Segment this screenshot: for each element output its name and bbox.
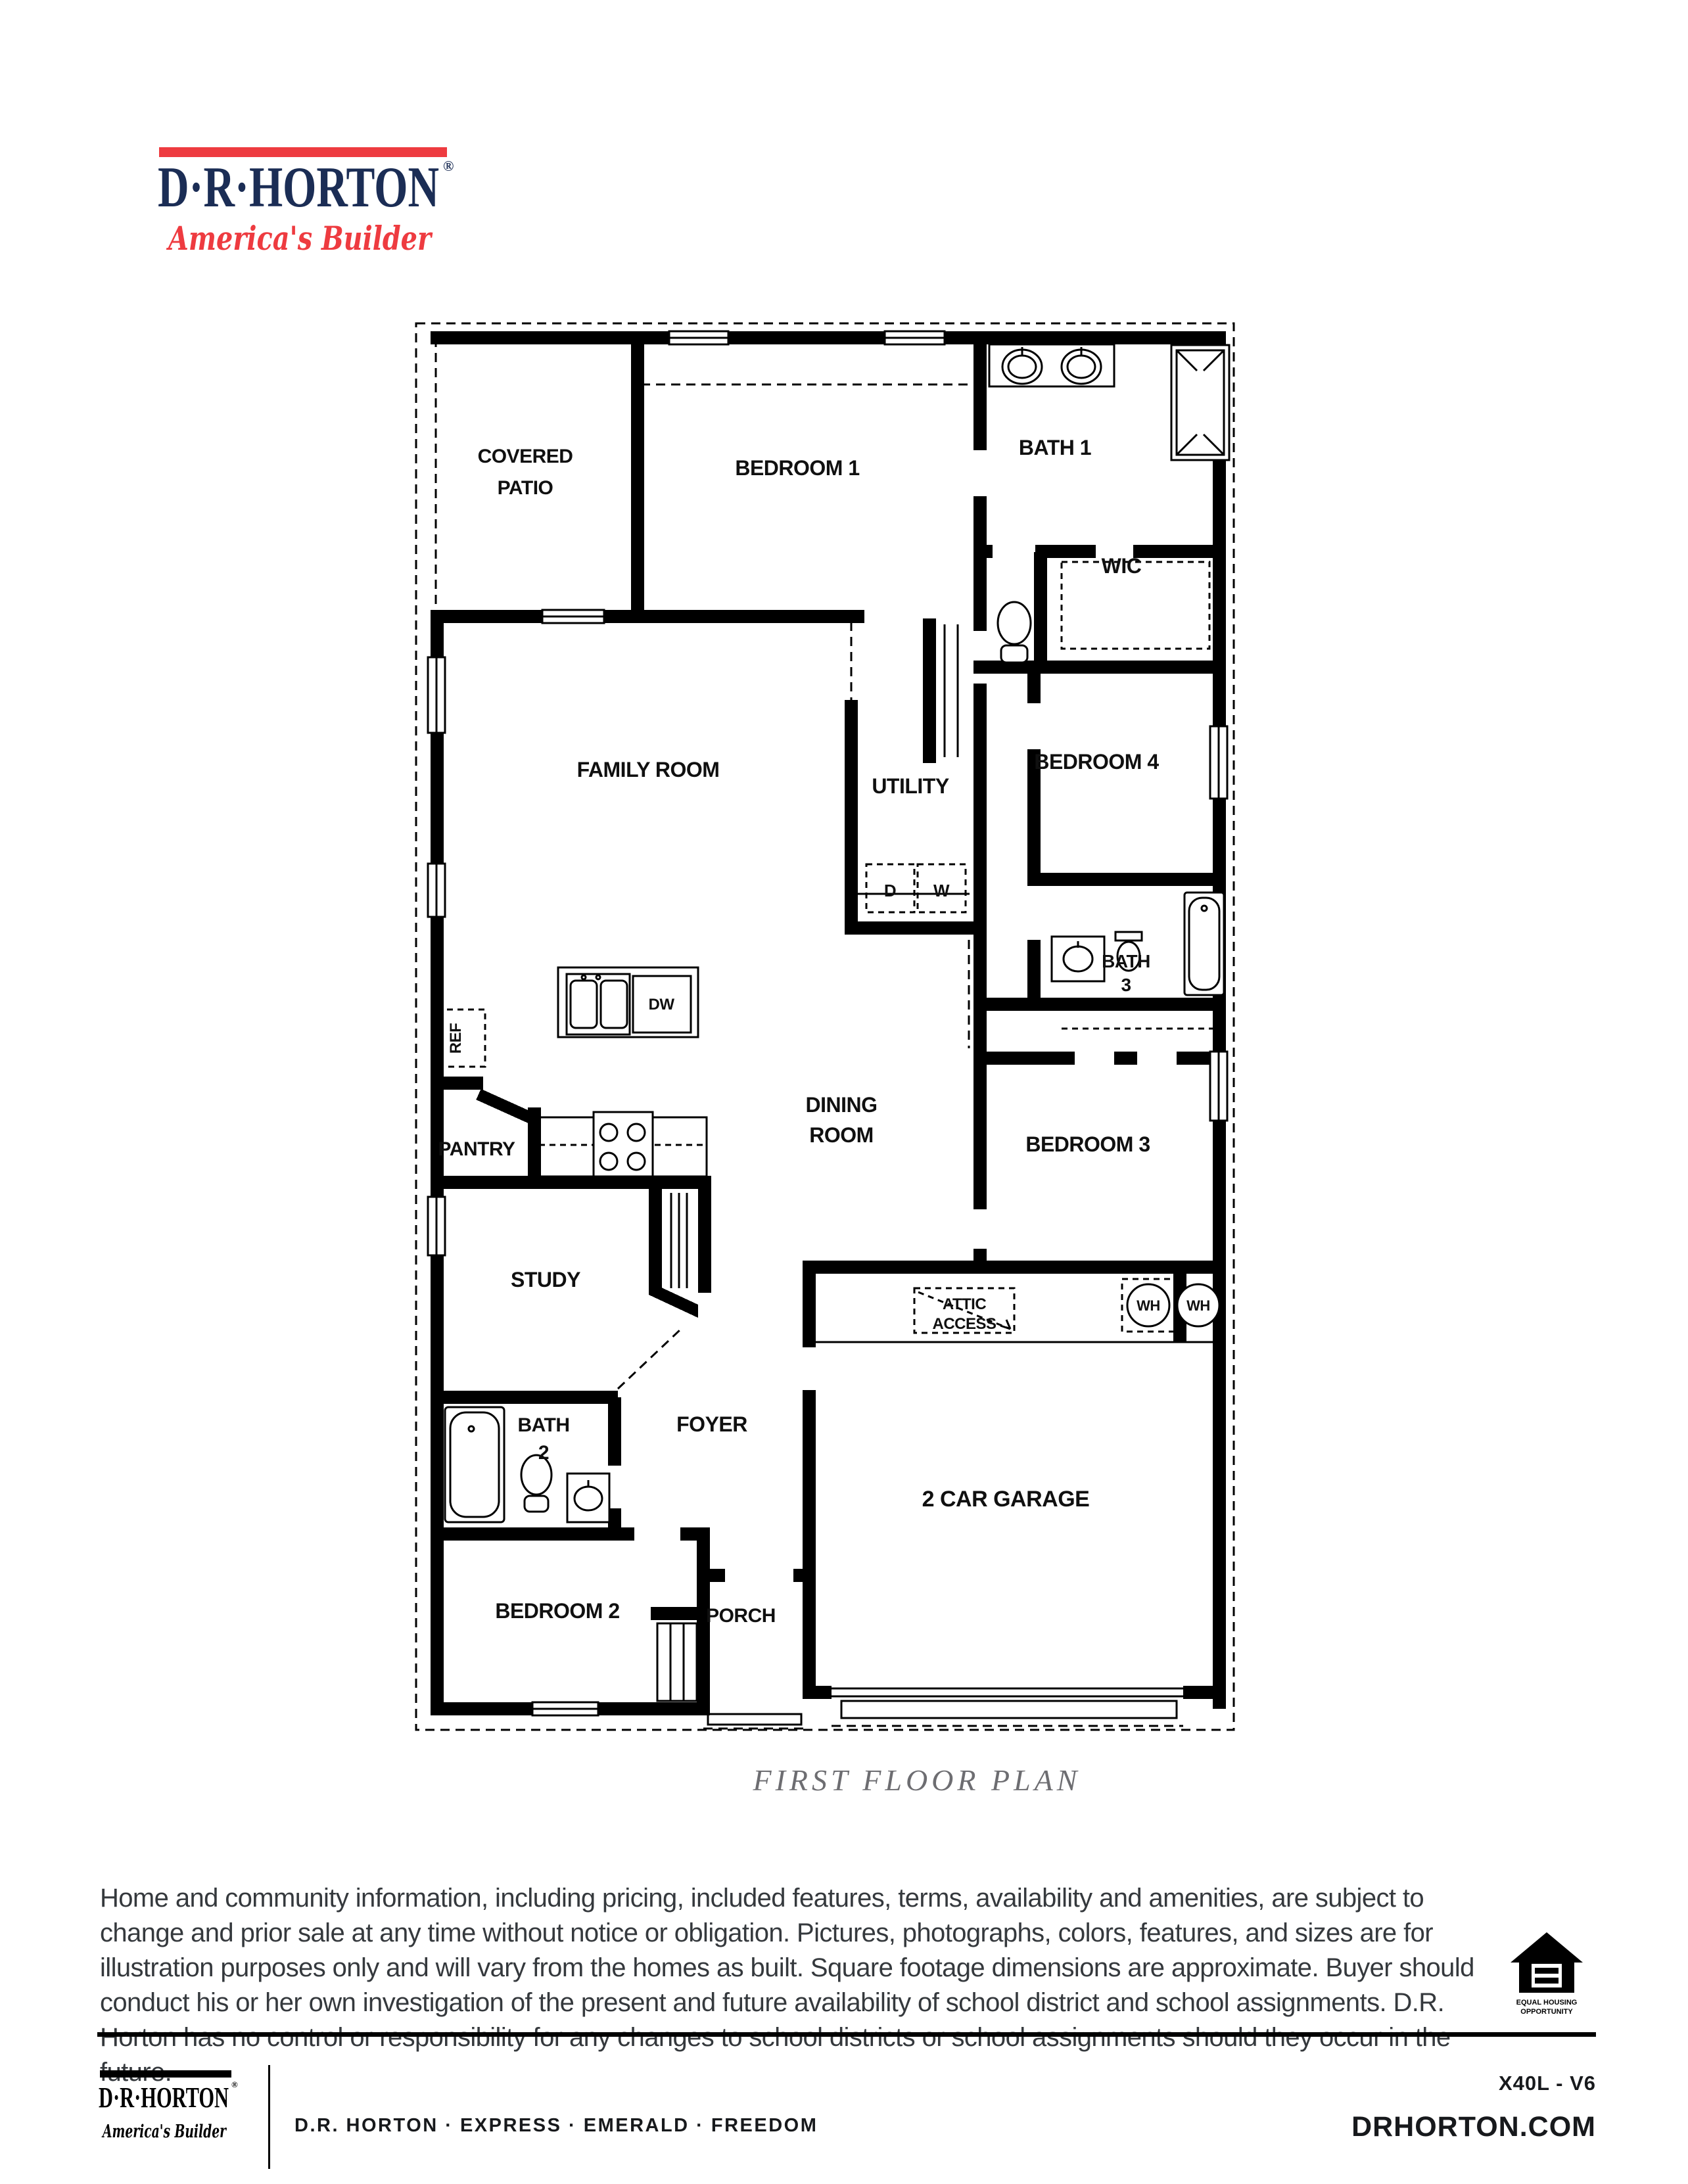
first-floor-plan-drawing: COVERED PATIO BEDROOM 1 BATH 1 WIC FAMIL…	[411, 315, 1239, 1748]
room-label-bath-3-line1: BATH	[1102, 951, 1150, 971]
room-label-bedroom-2: BEDROOM 2	[495, 1599, 619, 1623]
room-label-bath-3-line2: 3	[1121, 975, 1131, 995]
room-label-bedroom-3: BEDROOM 3	[1025, 1132, 1150, 1156]
window-icon	[428, 1197, 445, 1255]
slab-dashed-boundary	[416, 323, 1234, 1730]
room-label-covered-patio-1: COVERED	[478, 446, 573, 467]
kitchen-island	[558, 967, 698, 1037]
window-icon	[428, 864, 445, 917]
window-icon	[1210, 1052, 1227, 1121]
toilet-icon	[998, 602, 1031, 662]
room-label-bath-1: BATH 1	[1019, 436, 1091, 459]
window-icon	[532, 1702, 598, 1715]
footer-logo-tagline: America's Builder	[101, 2122, 227, 2142]
footer-brands-tagline: D.R. HORTON · EXPRESS · EMERALD · FREEDO…	[294, 2115, 818, 2137]
room-label-wic: WIC	[1102, 554, 1142, 578]
room-label-dining-line2: ROOM	[809, 1123, 874, 1147]
window-icon	[542, 610, 604, 623]
walls	[431, 331, 1226, 1715]
room-label-dining-line1: DINING	[806, 1093, 878, 1117]
fixtures	[436, 344, 1229, 1522]
footer-logo-registered: ®	[231, 2079, 238, 2089]
appliance-label-dishwasher: DW	[649, 996, 675, 1013]
bath1-vanity-sinks-icon	[989, 344, 1114, 386]
equal-housing-icon	[1511, 1932, 1583, 1993]
appliance-label-dryer: D	[884, 881, 896, 900]
room-label-pantry: PANTRY	[438, 1138, 515, 1160]
room-label-porch: PORCH	[706, 1605, 776, 1627]
drhorton-logo: D·R·HORTON ® America's Builder	[156, 139, 465, 271]
room-label-bath-2-line1: BATH	[517, 1414, 569, 1436]
footer-vertical-divider	[268, 2065, 270, 2169]
room-label-family-room: FAMILY ROOM	[577, 758, 720, 781]
footer-drhorton-logo: D·R·HORTON ® America's Builder	[99, 2061, 263, 2173]
footer-website-link[interactable]: DRHORTON.COM	[1070, 2111, 1596, 2143]
label-attic-access-line2: ACCESS	[932, 1315, 996, 1333]
appliance-label-refrigerator: REF	[447, 1023, 465, 1054]
bath2-vanity-icon	[567, 1474, 609, 1522]
window-icon	[885, 331, 945, 344]
logo-registered-mark: ®	[443, 158, 454, 174]
legal-disclaimer: Home and community information, includin…	[100, 1881, 1510, 2090]
bathtub-icon	[445, 1407, 504, 1522]
room-label-bedroom-4: BEDROOM 4	[1034, 750, 1159, 774]
room-label-study: STUDY	[511, 1268, 580, 1291]
room-label-foyer: FOYER	[676, 1412, 747, 1436]
equal-housing-opportunity-logo: EQUAL HOUSING OPPORTUNITY	[1509, 1931, 1588, 2023]
range-counter-icon	[536, 1112, 707, 1176]
eho-text-line2: OPPORTUNITY	[1520, 2008, 1573, 2016]
window-icon	[428, 657, 445, 733]
room-label-bedroom-1: BEDROOM 1	[735, 456, 859, 480]
logo-wordmark: D·R·HORTON	[158, 156, 439, 220]
floorplan-sheet: D·R·HORTON ® America's Builder	[0, 0, 1688, 2184]
eho-text-line1: EQUAL HOUSING	[1516, 1999, 1578, 2007]
footer-divider-rule	[97, 2032, 1596, 2037]
footer-plan-code: X40L - V6	[1070, 2072, 1596, 2095]
label-water-heater-2: WH	[1186, 1297, 1210, 1314]
label-water-heater-1: WH	[1137, 1297, 1160, 1314]
room-label-garage: 2 CAR GARAGE	[922, 1487, 1090, 1512]
room-label-covered-patio-2: PATIO	[498, 477, 553, 499]
shower-icon	[1171, 345, 1229, 460]
room-label-utility: UTILITY	[872, 774, 949, 798]
logo-tagline-script: America's Builder	[166, 219, 433, 258]
bathtub-icon	[1184, 893, 1224, 995]
footer-logo-wordmark: D·R·HORTON	[99, 2081, 229, 2114]
label-attic-access-line1: ATTIC	[943, 1295, 987, 1313]
window-icon	[669, 331, 728, 344]
dryer-washer-icons	[866, 864, 966, 912]
appliance-label-washer: W	[933, 881, 950, 900]
window-icon	[1210, 726, 1227, 799]
plan-caption: FIRST FLOOR PLAN	[654, 1763, 1180, 1798]
footer-logo-bar	[100, 2070, 231, 2078]
bath3-vanity-icon	[1052, 937, 1104, 981]
room-label-bath-2-line2: 2	[538, 1442, 549, 1464]
